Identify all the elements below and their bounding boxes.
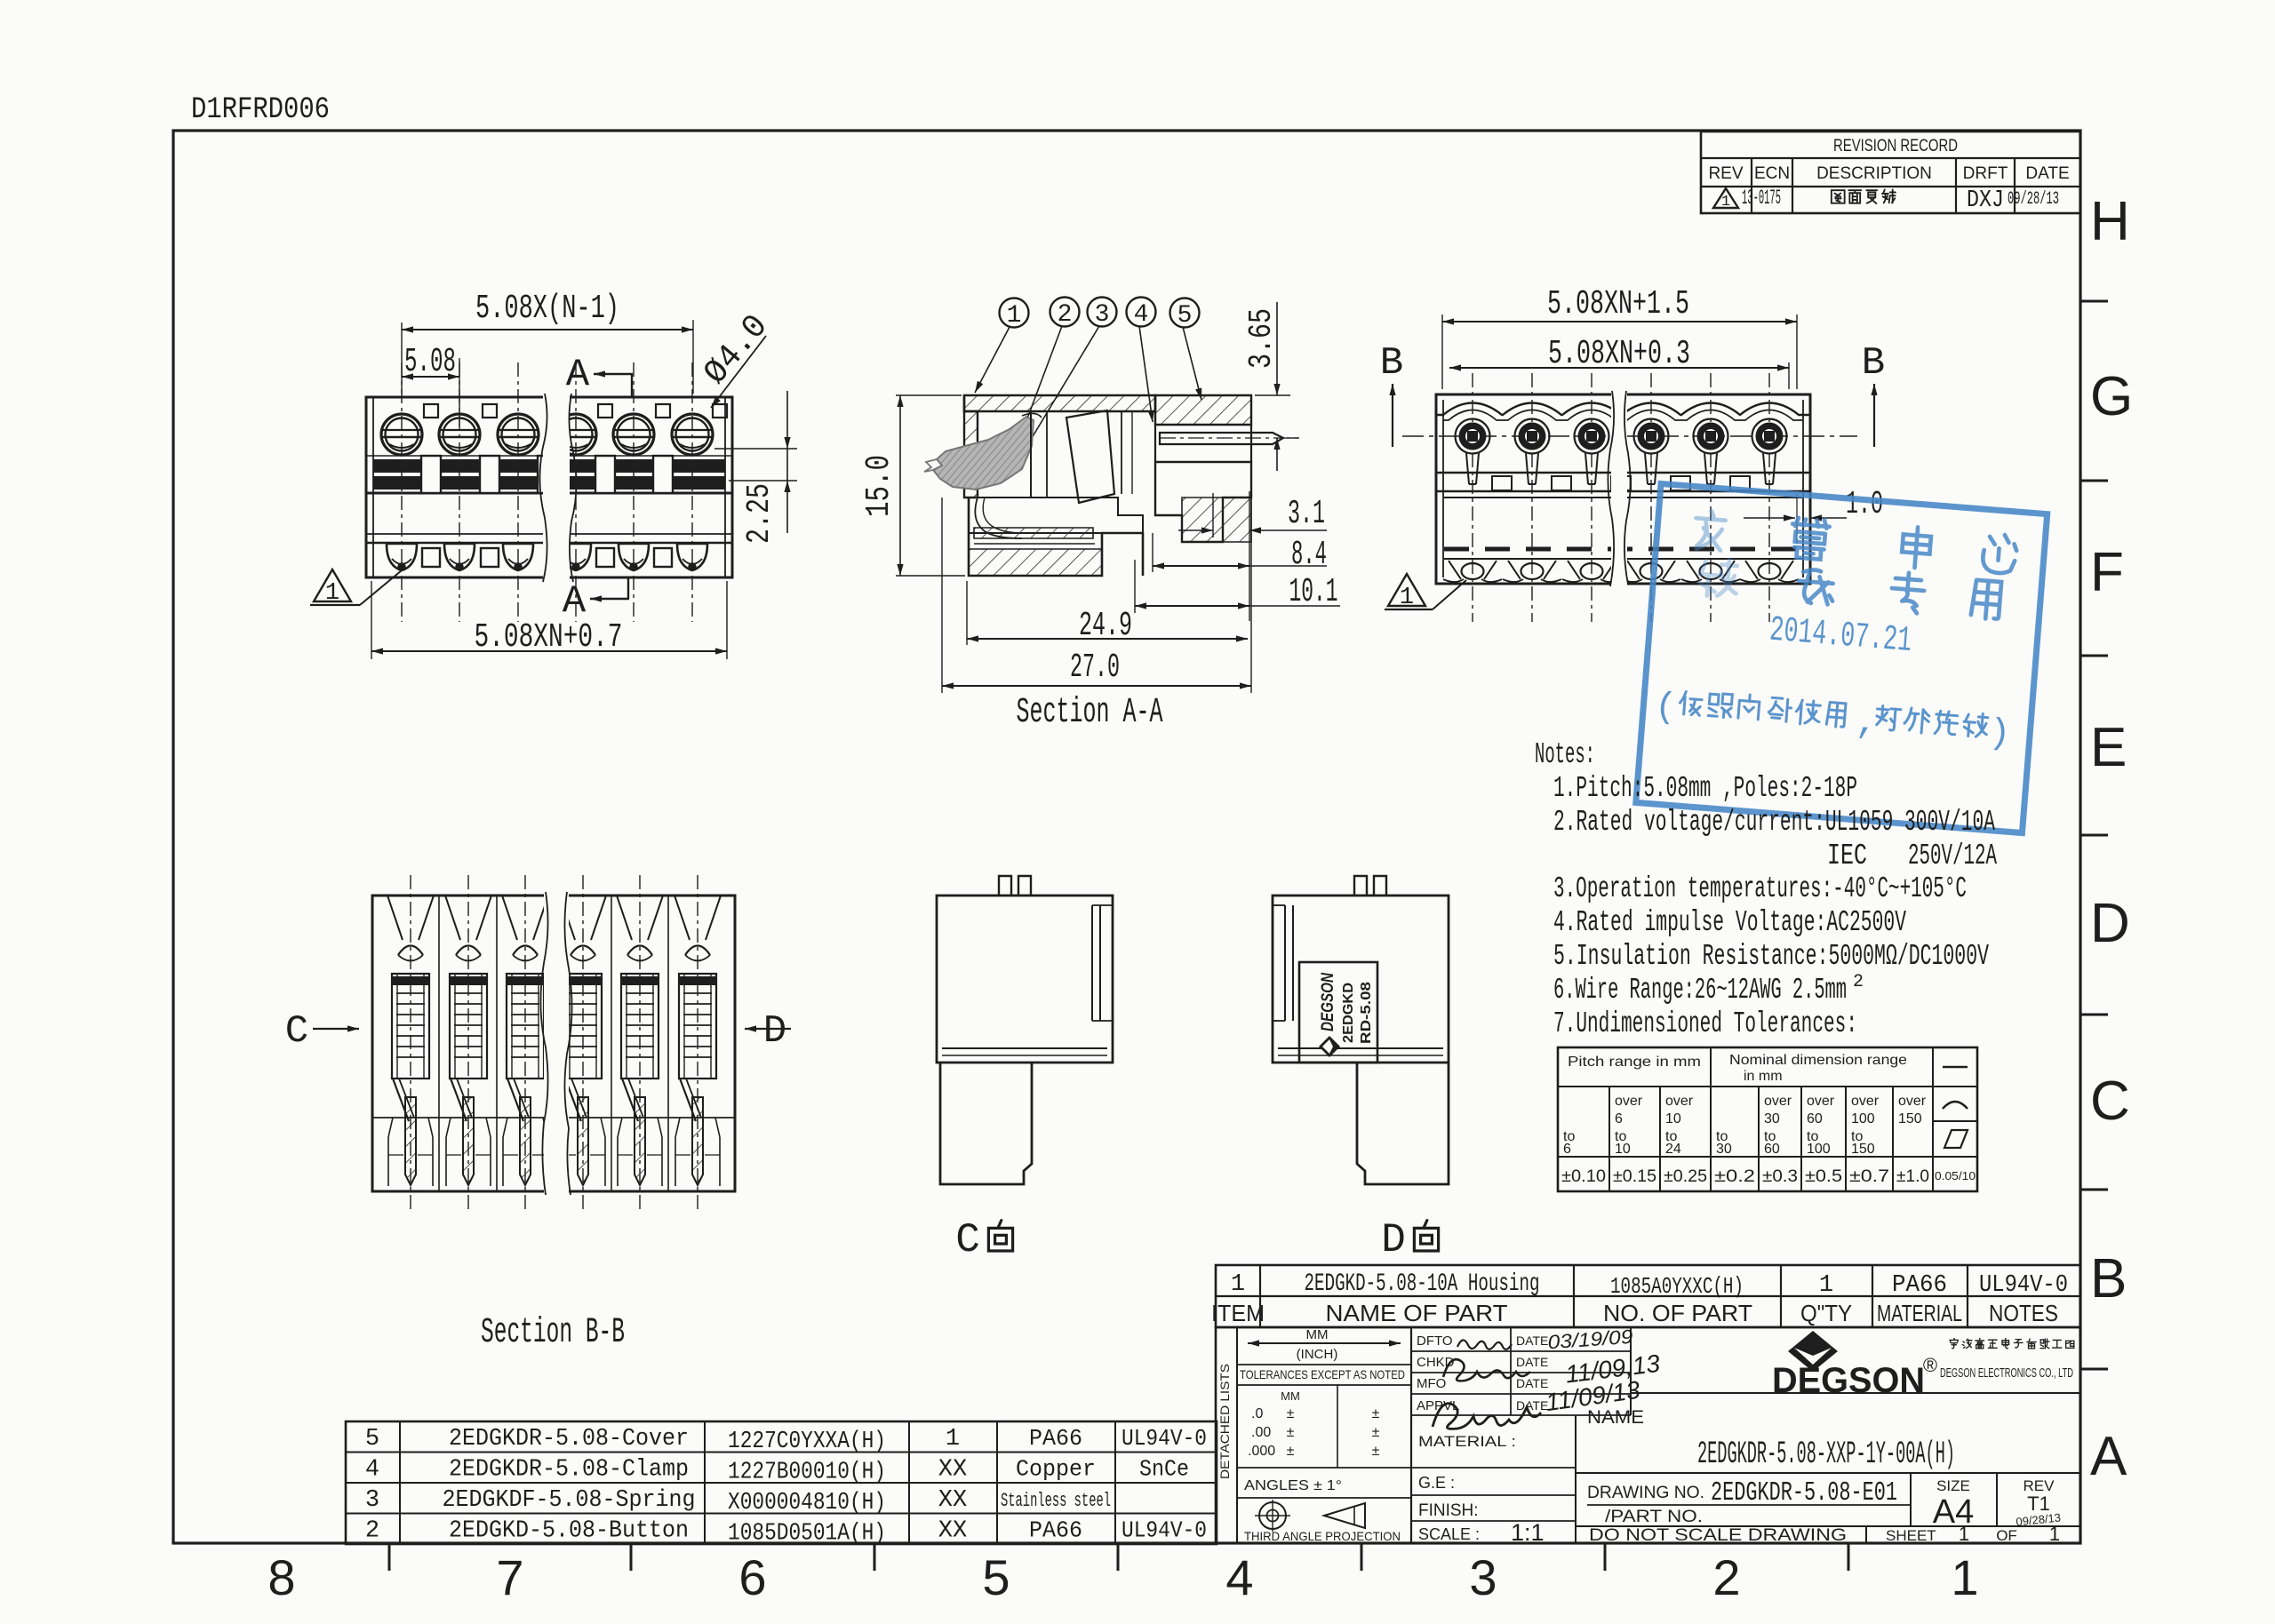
svg-text:1: 1 xyxy=(946,1426,960,1453)
svg-text:E: E xyxy=(2090,717,2127,778)
svg-text:FINISH:: FINISH: xyxy=(1418,1501,1479,1520)
svg-text:1: 1 xyxy=(1400,585,1414,611)
svg-text:±0.25: ±0.25 xyxy=(1664,1167,1707,1186)
svg-text:): ) xyxy=(1987,713,2011,755)
svg-text:3.65: 3.65 xyxy=(1243,308,1280,369)
svg-text:SCALE :: SCALE : xyxy=(1418,1525,1480,1543)
svg-text:in mm: in mm xyxy=(1744,1069,1783,1084)
svg-text:ITEM: ITEM xyxy=(1211,1300,1265,1326)
svg-text:±: ± xyxy=(1287,1425,1295,1440)
svg-text:Section B-B: Section B-B xyxy=(481,1313,625,1353)
svg-text:IEC: IEC xyxy=(1827,840,1867,872)
svg-text:Notes:: Notes: xyxy=(1535,738,1595,771)
svg-text:A: A xyxy=(566,353,590,397)
svg-text:1.Pitch:5.08mm ,Poles:2-18P: 1.Pitch:5.08mm ,Poles:2-18P xyxy=(1553,772,1857,805)
svg-text:.00: .00 xyxy=(1251,1425,1271,1440)
svg-text:6: 6 xyxy=(1563,1142,1571,1157)
svg-text:1: 1 xyxy=(1721,194,1730,211)
svg-text:3: 3 xyxy=(365,1487,379,1514)
svg-text:7.Undimensioned Tolerances:: 7.Undimensioned Tolerances: xyxy=(1553,1007,1857,1040)
svg-text:10: 10 xyxy=(1665,1111,1681,1126)
svg-text:SnCe: SnCe xyxy=(1139,1456,1189,1483)
svg-text:F: F xyxy=(2090,542,2124,603)
svg-text:1.0: 1.0 xyxy=(1846,486,1883,522)
svg-text:±: ± xyxy=(1372,1444,1380,1459)
svg-text:B: B xyxy=(1380,341,1403,386)
svg-text:2: 2 xyxy=(1712,1549,1740,1605)
svg-text:over: over xyxy=(1898,1094,1927,1109)
svg-text:3.Operation temperatures:-40°C: 3.Operation temperatures:-40°C~+105°C xyxy=(1553,872,1967,905)
svg-text:DEGSON ELECTRONICS CO., LTD: DEGSON ELECTRONICS CO., LTD xyxy=(1940,1366,2073,1381)
svg-text:100: 100 xyxy=(1851,1111,1875,1126)
svg-text:2.25: 2.25 xyxy=(741,483,778,544)
svg-text:B: B xyxy=(1862,341,1885,386)
svg-text:DATE: DATE xyxy=(2025,164,2069,183)
svg-text:DEGSON: DEGSON xyxy=(1772,1361,1925,1400)
svg-text:REV: REV xyxy=(1708,164,1743,183)
svg-text:±: ± xyxy=(1372,1406,1380,1421)
svg-text:H: H xyxy=(2090,191,2130,252)
svg-text:TOLERANCES EXCEPT AS NOTED: TOLERANCES EXCEPT AS NOTED xyxy=(1240,1367,1405,1381)
svg-text:2: 2 xyxy=(365,1518,379,1545)
svg-text:2: 2 xyxy=(1853,972,1864,992)
svg-text:Nominal dimension range: Nominal dimension range xyxy=(1729,1053,1907,1068)
svg-text:4.Rated impulse Voltage:AC2500: 4.Rated impulse Voltage:AC2500V xyxy=(1553,906,1906,939)
svg-text:MFO: MFO xyxy=(1417,1376,1446,1391)
svg-text:1:1: 1:1 xyxy=(1511,1519,1545,1546)
svg-text:®: ® xyxy=(1923,1354,1937,1376)
svg-text:10: 10 xyxy=(1615,1142,1631,1157)
svg-text:DXJ: DXJ xyxy=(1967,187,2004,214)
svg-text:SIZE: SIZE xyxy=(1936,1477,1970,1494)
svg-text:1: 1 xyxy=(1819,1272,1833,1299)
svg-text:1: 1 xyxy=(1007,302,1022,330)
svg-text:2EDGKDR-5.08-XXP-1Y-00A(H): 2EDGKDR-5.08-XXP-1Y-00A(H) xyxy=(1697,1437,1955,1472)
svg-text:1: 1 xyxy=(325,580,339,607)
svg-text:XX: XX xyxy=(938,1518,967,1545)
svg-text:±0.15: ±0.15 xyxy=(1613,1167,1656,1186)
svg-text:2EDGKD-5.08-Button: 2EDGKD-5.08-Button xyxy=(449,1518,689,1545)
svg-text:over: over xyxy=(1615,1094,1643,1109)
svg-text:NOTES: NOTES xyxy=(1989,1300,2058,1326)
svg-text:G.E :: G.E : xyxy=(1418,1474,1455,1492)
svg-text:,: , xyxy=(1855,704,1879,745)
svg-text:PA66: PA66 xyxy=(1029,1425,1082,1452)
svg-text:8.4: 8.4 xyxy=(1291,536,1327,574)
svg-text:5.08X(N-1): 5.08X(N-1) xyxy=(475,290,619,328)
svg-text:60: 60 xyxy=(1764,1142,1780,1157)
svg-text:THIRD ANGLE PROJECTION: THIRD ANGLE PROJECTION xyxy=(1244,1529,1401,1543)
svg-text:DETACHED LISTS: DETACHED LISTS xyxy=(1217,1364,1232,1479)
svg-text:G: G xyxy=(2090,366,2133,427)
svg-text:2EDGKDF-5.08-Spring: 2EDGKDF-5.08-Spring xyxy=(443,1487,696,1514)
svg-text:2EDGKDR-5.08-Cover: 2EDGKDR-5.08-Cover xyxy=(449,1426,689,1453)
svg-text:DFTO: DFTO xyxy=(1417,1333,1453,1349)
svg-text:DATE: DATE xyxy=(1516,1333,1548,1348)
svg-text:0.05/10: 0.05/10 xyxy=(1935,1169,1976,1182)
svg-text:B: B xyxy=(2090,1248,2127,1310)
svg-text:2EDGKDR-5.08-Clamp: 2EDGKDR-5.08-Clamp xyxy=(449,1457,689,1484)
svg-text:1: 1 xyxy=(1951,1549,1978,1605)
svg-text:NO. OF PART: NO. OF PART xyxy=(1603,1300,1752,1326)
svg-text:4: 4 xyxy=(365,1457,379,1484)
svg-text:1: 1 xyxy=(1231,1271,1245,1298)
svg-text:1227B00010(H): 1227B00010(H) xyxy=(728,1460,886,1486)
svg-text:MM: MM xyxy=(1306,1327,1329,1342)
svg-text:6: 6 xyxy=(1615,1111,1623,1126)
svg-text:5: 5 xyxy=(982,1549,1010,1605)
svg-text:over: over xyxy=(1807,1094,1835,1109)
svg-text:DATE: DATE xyxy=(1516,1355,1548,1369)
svg-text:NAME OF PART: NAME OF PART xyxy=(1326,1300,1508,1326)
svg-text:DRFT: DRFT xyxy=(1963,164,2008,183)
svg-text:(INCH): (INCH) xyxy=(1297,1347,1338,1362)
svg-text:SHEET: SHEET xyxy=(1886,1527,1936,1544)
svg-text:8: 8 xyxy=(267,1549,295,1605)
svg-text:±0.3: ±0.3 xyxy=(1762,1167,1798,1186)
svg-text:100: 100 xyxy=(1807,1142,1831,1157)
svg-text:PA66: PA66 xyxy=(1892,1272,1947,1299)
svg-text:OF: OF xyxy=(1996,1527,2017,1544)
svg-text:5.Insulation Resistance:5000MΩ: 5.Insulation Resistance:5000MΩ/DC1000V xyxy=(1553,940,1989,973)
svg-text:C: C xyxy=(2090,1071,2130,1132)
svg-text:DEGSON: DEGSON xyxy=(1319,972,1337,1031)
svg-text:2EDGKDR-5.08-E01: 2EDGKDR-5.08-E01 xyxy=(1711,1477,1897,1509)
svg-text:2EDGKD-5.08-10A Housing: 2EDGKD-5.08-10A Housing xyxy=(1305,1270,1540,1298)
svg-text:±: ± xyxy=(1287,1444,1295,1459)
svg-text:MM: MM xyxy=(1281,1389,1300,1403)
svg-text:over: over xyxy=(1665,1094,1694,1109)
svg-text:60: 60 xyxy=(1807,1111,1823,1126)
svg-text:7: 7 xyxy=(496,1549,523,1605)
svg-text:Pitch range in mm: Pitch range in mm xyxy=(1568,1055,1701,1070)
svg-text:C: C xyxy=(955,1217,980,1263)
svg-text:A: A xyxy=(563,579,587,624)
svg-text:D: D xyxy=(763,1009,786,1054)
svg-text:250V/12A: 250V/12A xyxy=(1908,840,1997,872)
svg-text:150: 150 xyxy=(1898,1111,1922,1126)
svg-text:09/28/13: 09/28/13 xyxy=(2008,189,2059,210)
svg-text:3.1: 3.1 xyxy=(1288,495,1325,533)
svg-text:±0.10: ±0.10 xyxy=(1561,1167,1606,1186)
svg-text:D1RFRD006: D1RFRD006 xyxy=(191,93,330,127)
svg-text:DRAWING NO.: DRAWING NO. xyxy=(1587,1484,1704,1502)
svg-text:XX: XX xyxy=(938,1487,967,1514)
svg-text:NAME: NAME xyxy=(1587,1407,1644,1428)
svg-text:XX: XX xyxy=(938,1457,967,1484)
svg-text:5: 5 xyxy=(365,1426,379,1453)
svg-text:27.0: 27.0 xyxy=(1070,649,1120,687)
svg-text:24: 24 xyxy=(1665,1142,1681,1157)
svg-text:±0.7: ±0.7 xyxy=(1849,1167,1889,1186)
svg-text:Q"TY: Q"TY xyxy=(1800,1300,1852,1326)
svg-text:30: 30 xyxy=(1764,1111,1780,1126)
svg-text:Section A-A: Section A-A xyxy=(1017,693,1163,733)
svg-text:±1.0: ±1.0 xyxy=(1896,1167,1929,1186)
svg-text:2EDGKD: 2EDGKD xyxy=(1341,983,1356,1043)
svg-text:/PART NO.: /PART NO. xyxy=(1605,1508,1703,1526)
svg-text:ECN: ECN xyxy=(1754,164,1790,183)
svg-text:DESCRIPTION: DESCRIPTION xyxy=(1816,164,1932,183)
svg-text:1227C0YXXA(H): 1227C0YXXA(H) xyxy=(728,1429,886,1455)
svg-text:±0.2: ±0.2 xyxy=(1714,1167,1755,1186)
svg-text:±0.5: ±0.5 xyxy=(1805,1167,1842,1186)
svg-text:UL94V-0: UL94V-0 xyxy=(1122,1517,1207,1544)
svg-text:UL94V-0: UL94V-0 xyxy=(1979,1272,2068,1299)
svg-text:Copper: Copper xyxy=(1016,1456,1096,1483)
svg-text:15.0: 15.0 xyxy=(860,455,898,517)
svg-text:A: A xyxy=(2090,1426,2127,1487)
svg-text:(: ( xyxy=(1653,688,1677,729)
svg-text:6: 6 xyxy=(738,1549,766,1605)
svg-text:5.08XN+1.5: 5.08XN+1.5 xyxy=(1547,285,1689,323)
svg-text:PA66: PA66 xyxy=(1029,1517,1082,1544)
svg-text:1085D0501A(H): 1085D0501A(H) xyxy=(728,1521,886,1548)
svg-text:2.Rated voltage/current:UL1059: 2.Rated voltage/current:UL1059 300V/10A xyxy=(1553,806,1995,839)
svg-text:1: 1 xyxy=(1959,1523,1969,1545)
svg-text:MATERIAL: MATERIAL xyxy=(1877,1300,1962,1326)
svg-text:4: 4 xyxy=(1134,301,1149,329)
svg-text:DATE: DATE xyxy=(1516,1398,1548,1413)
svg-text:D: D xyxy=(1381,1217,1406,1263)
svg-text:over: over xyxy=(1851,1094,1880,1109)
svg-text:3: 3 xyxy=(1095,301,1110,329)
svg-text:.000: .000 xyxy=(1248,1444,1275,1459)
svg-text:4: 4 xyxy=(1225,1549,1253,1605)
svg-text:2: 2 xyxy=(1058,301,1073,329)
svg-text:C: C xyxy=(285,1009,308,1054)
svg-text:30: 30 xyxy=(1716,1142,1732,1157)
svg-text:3: 3 xyxy=(1469,1549,1497,1605)
svg-text:X000004810(H): X000004810(H) xyxy=(728,1490,886,1517)
svg-text:ANGLES ± 1°: ANGLES ± 1° xyxy=(1244,1478,1342,1493)
svg-text:±: ± xyxy=(1287,1406,1295,1421)
svg-text:Stainless steel: Stainless steel xyxy=(1001,1490,1111,1512)
svg-text:1: 1 xyxy=(2049,1523,2060,1545)
svg-text:D: D xyxy=(2090,893,2130,954)
svg-text:RD-5.08: RD-5.08 xyxy=(1359,982,1374,1044)
svg-text:CHKD: CHKD xyxy=(1417,1355,1455,1370)
svg-text:over: over xyxy=(1764,1094,1792,1109)
svg-text:MATERIAL :: MATERIAL : xyxy=(1418,1433,1516,1450)
svg-text:.0: .0 xyxy=(1251,1406,1263,1421)
svg-text:UL94V-0: UL94V-0 xyxy=(1122,1425,1207,1452)
svg-text:DO NOT SCALE DRAWING: DO NOT SCALE DRAWING xyxy=(1589,1526,1847,1545)
svg-text:5: 5 xyxy=(1177,302,1193,330)
svg-text:1085A0YXXC(H): 1085A0YXXC(H) xyxy=(1610,1273,1744,1300)
svg-text:REVISION RECORD: REVISION RECORD xyxy=(1833,137,1958,155)
svg-text:150: 150 xyxy=(1851,1142,1875,1157)
svg-text:13-0175: 13-0175 xyxy=(1742,187,1781,210)
svg-text:6.Wire Range:26~12AWG 2.5mm: 6.Wire Range:26~12AWG 2.5mm xyxy=(1553,974,1847,1007)
svg-text:±: ± xyxy=(1372,1425,1380,1440)
